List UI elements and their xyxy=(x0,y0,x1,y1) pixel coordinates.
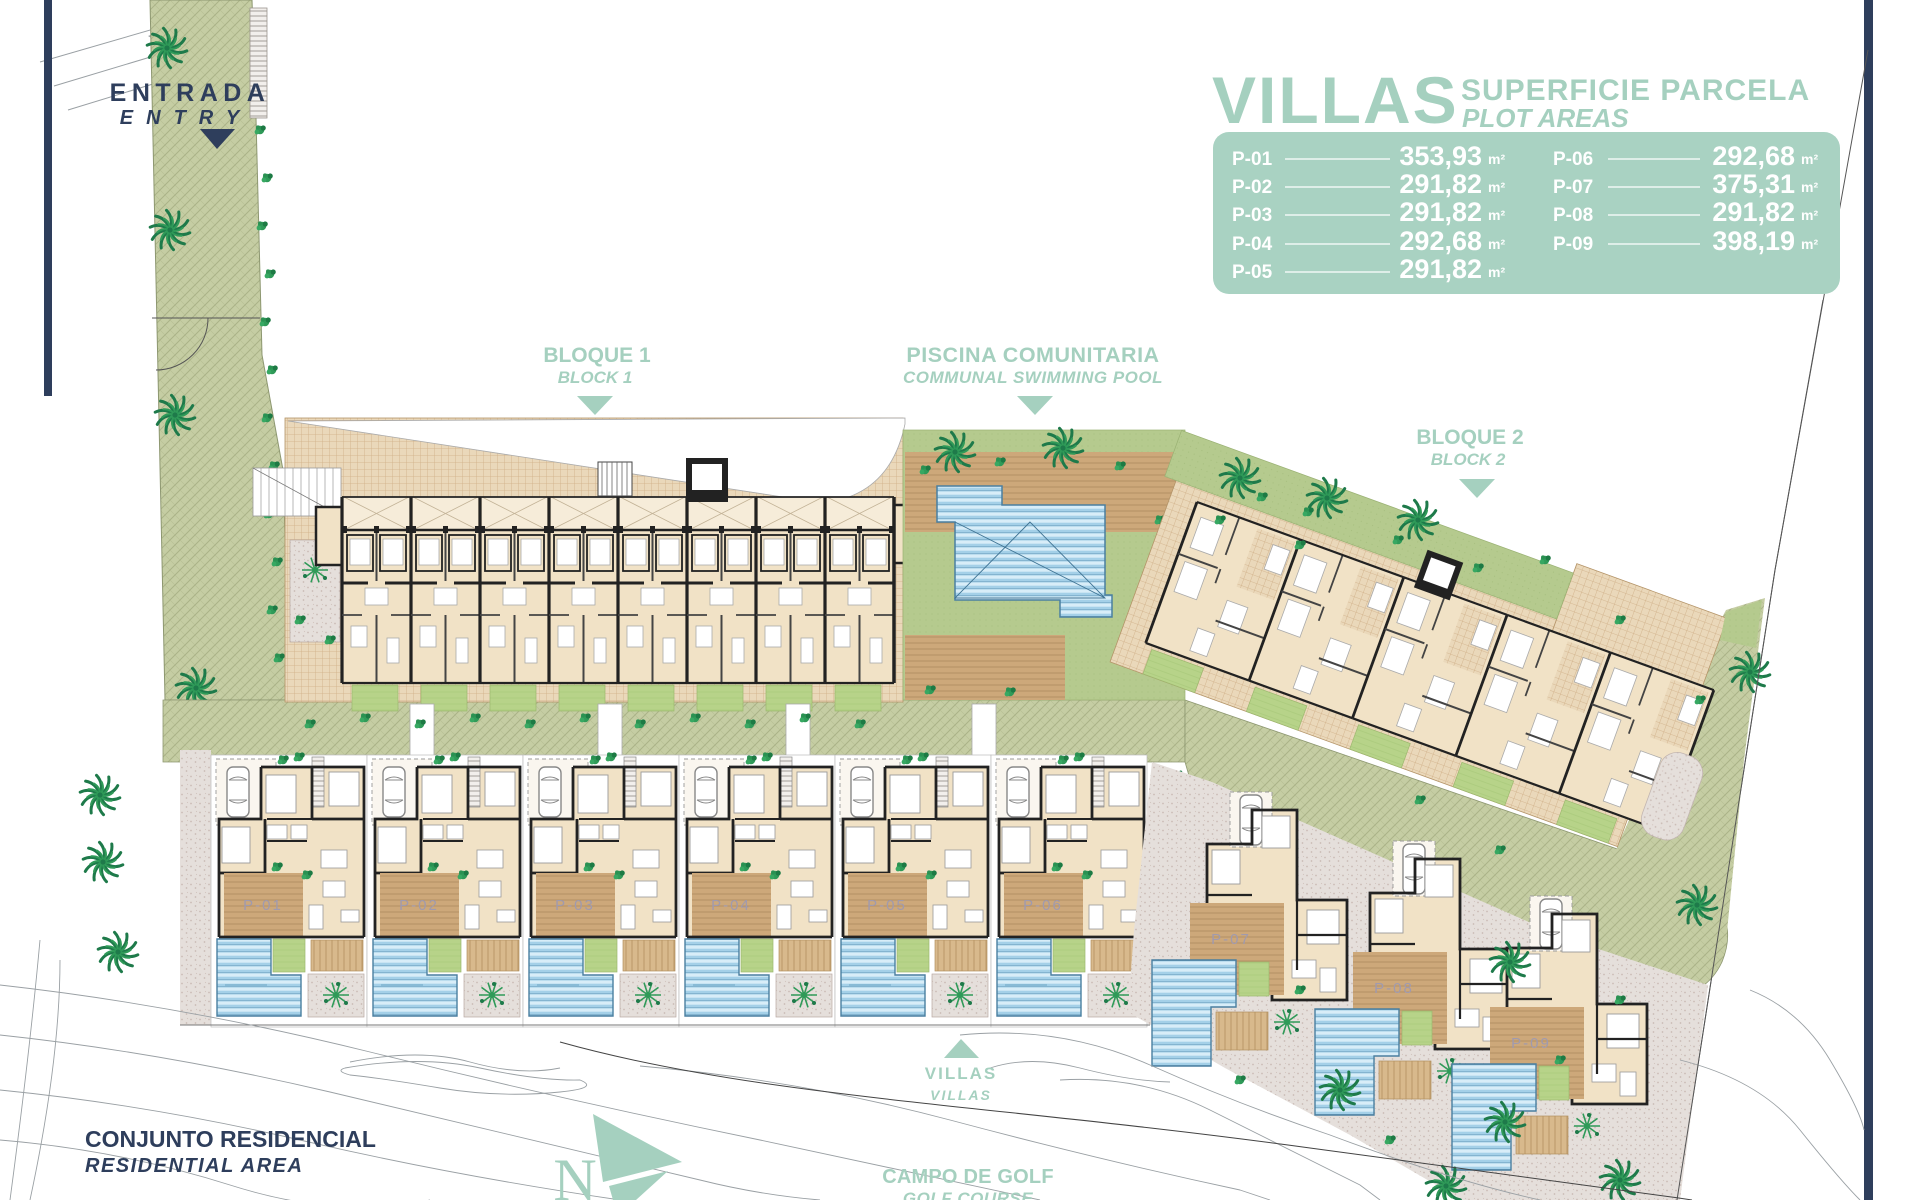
svg-text:P-09: P-09 xyxy=(1553,234,1593,255)
svg-text:291,82: 291,82 xyxy=(1712,197,1795,227)
svg-text:m²: m² xyxy=(1488,179,1505,195)
svg-text:353,93: 353,93 xyxy=(1399,141,1482,171)
svg-text:ENTRADA: ENTRADA xyxy=(110,79,271,107)
svg-text:P-06: P-06 xyxy=(1023,897,1063,914)
svg-text:375,31: 375,31 xyxy=(1712,169,1795,199)
svg-text:P-04: P-04 xyxy=(711,897,751,914)
svg-text:P-08: P-08 xyxy=(1553,205,1593,226)
svg-text:m²: m² xyxy=(1801,236,1818,252)
svg-text:m²: m² xyxy=(1801,151,1818,167)
svg-text:ENTRY: ENTRY xyxy=(120,107,252,129)
svg-text:m²: m² xyxy=(1488,264,1505,280)
svg-text:P-09: P-09 xyxy=(1511,1035,1551,1052)
svg-text:P-03: P-03 xyxy=(1232,205,1272,226)
svg-text:P-06: P-06 xyxy=(1553,149,1593,170)
svg-text:m²: m² xyxy=(1801,207,1818,223)
svg-text:P-05: P-05 xyxy=(867,897,907,914)
svg-text:P-08: P-08 xyxy=(1374,980,1414,997)
svg-text:N: N xyxy=(553,1147,596,1200)
svg-text:VILLAS: VILLAS xyxy=(925,1064,997,1083)
svg-text:P-07: P-07 xyxy=(1553,177,1593,198)
svg-text:P-05: P-05 xyxy=(1232,262,1273,283)
svg-text:m²: m² xyxy=(1801,179,1818,195)
svg-text:COMMUNAL SWIMMING POOL: COMMUNAL SWIMMING POOL xyxy=(903,368,1163,387)
svg-text:RESIDENTIAL AREA: RESIDENTIAL AREA xyxy=(85,1155,303,1177)
svg-text:291,82: 291,82 xyxy=(1399,197,1482,227)
svg-text:m²: m² xyxy=(1488,151,1505,167)
svg-text:BLOCK 2: BLOCK 2 xyxy=(1431,450,1506,469)
svg-text:PLOT AREAS: PLOT AREAS xyxy=(1462,103,1629,133)
svg-text:BLOCK 1: BLOCK 1 xyxy=(558,368,633,387)
svg-text:P-02: P-02 xyxy=(1232,177,1272,198)
svg-text:CONJUNTO RESIDENCIAL: CONJUNTO RESIDENCIAL xyxy=(85,1126,376,1152)
svg-text:GOLF COURSE: GOLF COURSE xyxy=(903,1189,1033,1200)
svg-text:291,82: 291,82 xyxy=(1399,169,1482,199)
svg-text:CAMPO DE GOLF: CAMPO DE GOLF xyxy=(882,1166,1054,1188)
svg-text:VILLAS: VILLAS xyxy=(1212,63,1459,137)
svg-text:P-01: P-01 xyxy=(1232,149,1273,170)
svg-text:291,82: 291,82 xyxy=(1399,254,1482,284)
svg-text:P-07: P-07 xyxy=(1211,931,1251,948)
svg-text:P-02: P-02 xyxy=(399,897,439,914)
svg-text:P-03: P-03 xyxy=(555,897,595,914)
svg-text:BLOQUE 1: BLOQUE 1 xyxy=(543,344,651,367)
svg-text:P-04: P-04 xyxy=(1232,234,1273,255)
svg-text:m²: m² xyxy=(1488,236,1505,252)
svg-text:PISCINA COMUNITARIA: PISCINA COMUNITARIA xyxy=(906,343,1159,367)
svg-text:292,68: 292,68 xyxy=(1399,226,1482,256)
svg-text:VILLAS: VILLAS xyxy=(930,1087,992,1103)
svg-text:m²: m² xyxy=(1488,207,1505,223)
svg-text:292,68: 292,68 xyxy=(1712,141,1795,171)
svg-text:BLOQUE 2: BLOQUE 2 xyxy=(1416,426,1523,449)
svg-text:398,19: 398,19 xyxy=(1712,226,1795,256)
svg-text:P-01: P-01 xyxy=(243,897,283,914)
